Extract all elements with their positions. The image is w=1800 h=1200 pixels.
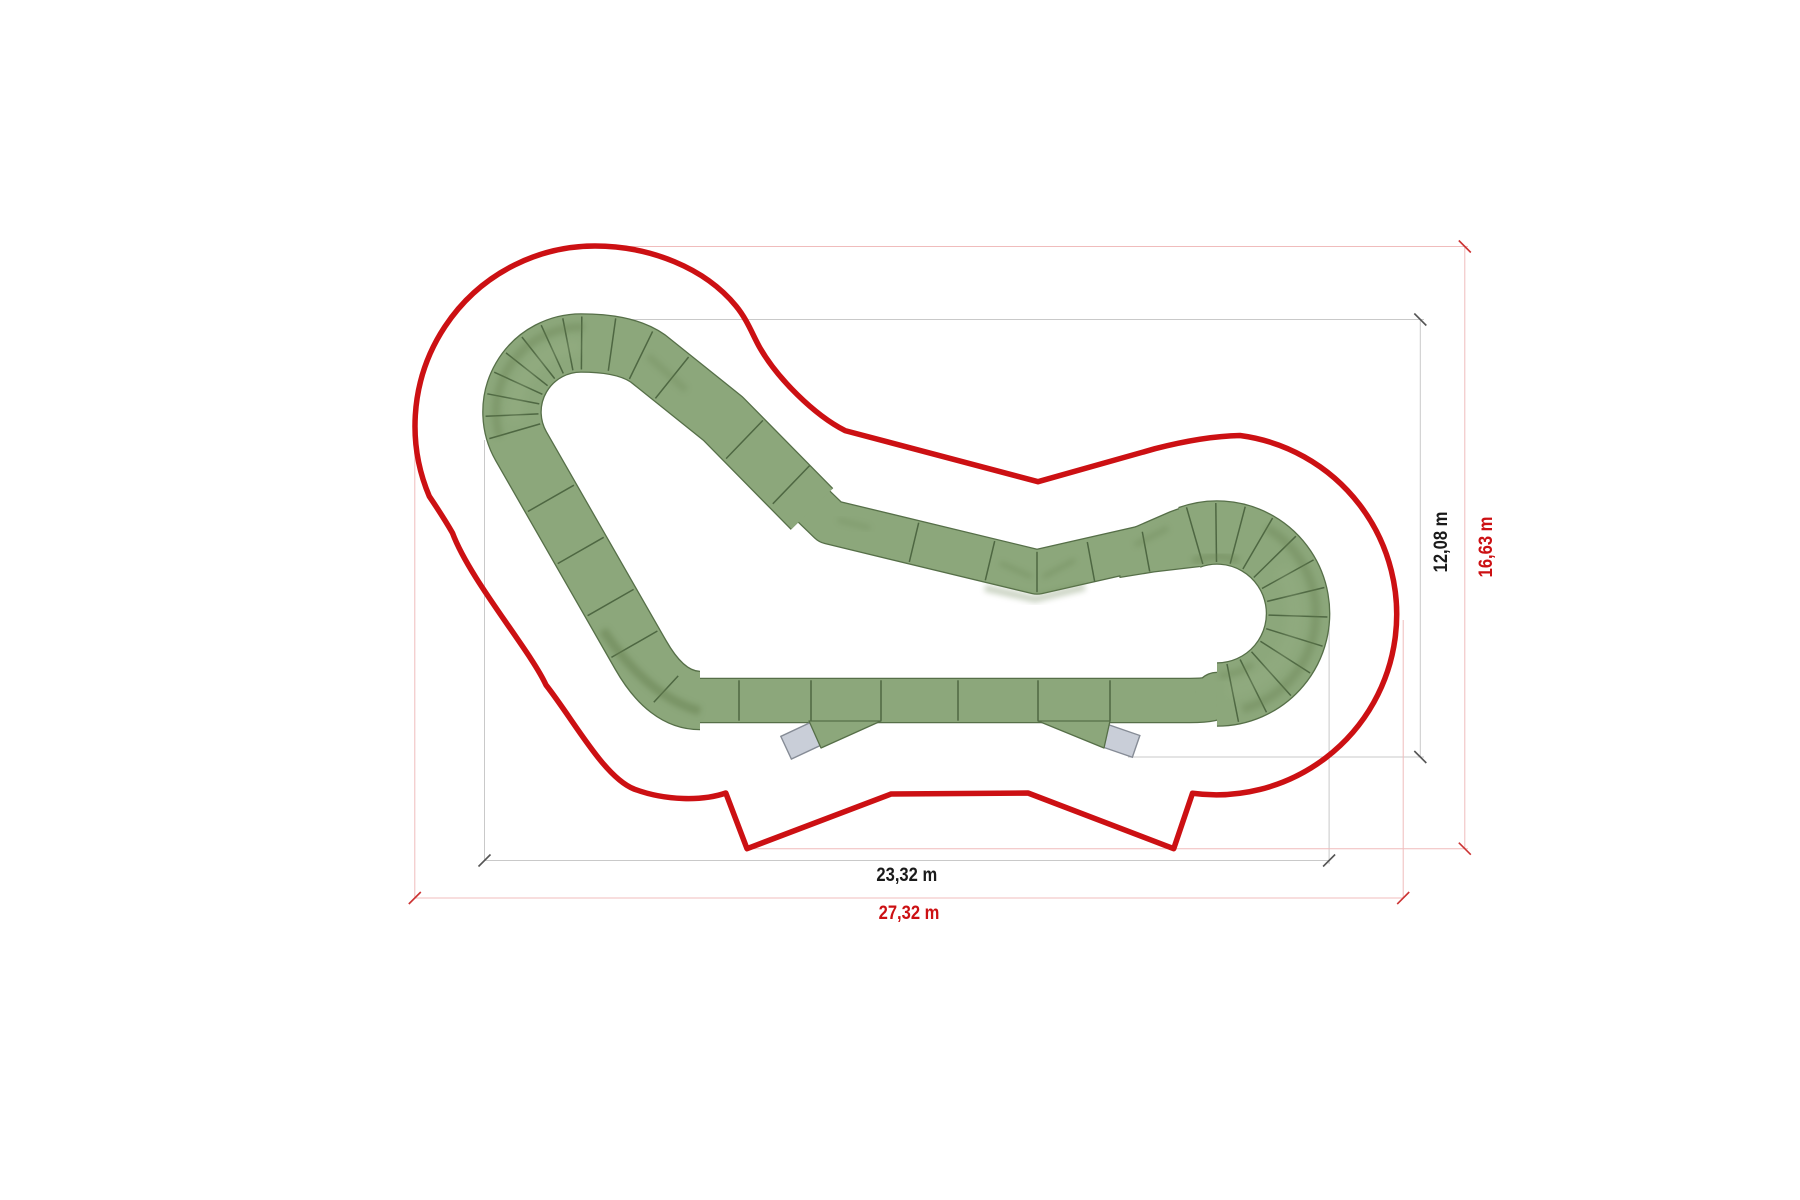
svg-text:23,32 m: 23,32 m [876, 864, 937, 886]
svg-text:27,32 m: 27,32 m [879, 902, 940, 924]
svg-text:12,08 m: 12,08 m [1430, 512, 1452, 573]
svg-text:16,63 m: 16,63 m [1475, 517, 1497, 578]
